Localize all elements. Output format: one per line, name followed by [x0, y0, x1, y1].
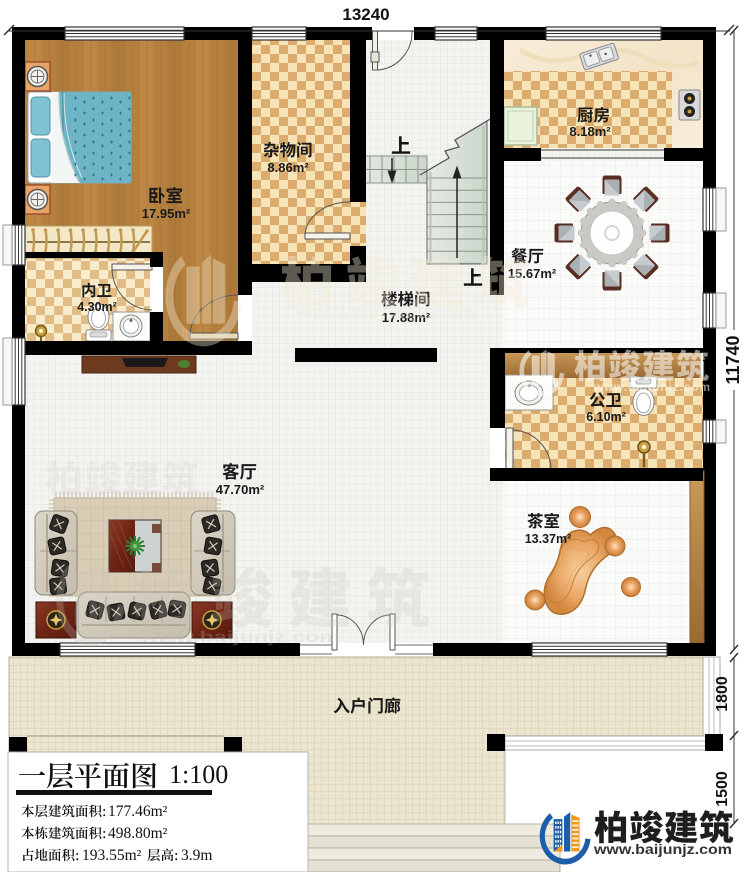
- svg-text:1:100: 1:100: [169, 760, 228, 789]
- svg-text:8.18m²: 8.18m²: [569, 124, 611, 139]
- svg-text:47.70m²: 47.70m²: [216, 482, 265, 497]
- svg-text:177.46m²: 177.46m²: [108, 803, 168, 820]
- svg-text:13.37m²: 13.37m²: [525, 532, 572, 546]
- svg-text:13240: 13240: [342, 5, 389, 24]
- svg-text:11740: 11740: [723, 335, 743, 384]
- svg-text:www.baijunjz.com: www.baijunjz.com: [295, 305, 476, 322]
- svg-text:www.baijunjz.com: www.baijunjz.com: [593, 841, 732, 857]
- svg-text:www.baijunjz.com: www.baijunjz.com: [593, 382, 710, 394]
- svg-text:1500: 1500: [714, 771, 731, 807]
- svg-text:3.9m: 3.9m: [181, 847, 212, 864]
- svg-text:17.95m²: 17.95m²: [142, 206, 191, 221]
- svg-text:8.86m²: 8.86m²: [267, 160, 309, 175]
- svg-text:498.80m²: 498.80m²: [108, 825, 168, 842]
- svg-text:1800: 1800: [714, 676, 731, 712]
- svg-text:6.10m²: 6.10m²: [586, 410, 626, 424]
- svg-text:193.55m²: 193.55m²: [82, 847, 142, 864]
- svg-text:www.baijunjz.com: www.baijunjz.com: [139, 629, 340, 646]
- svg-text:4.30m²: 4.30m²: [77, 300, 117, 314]
